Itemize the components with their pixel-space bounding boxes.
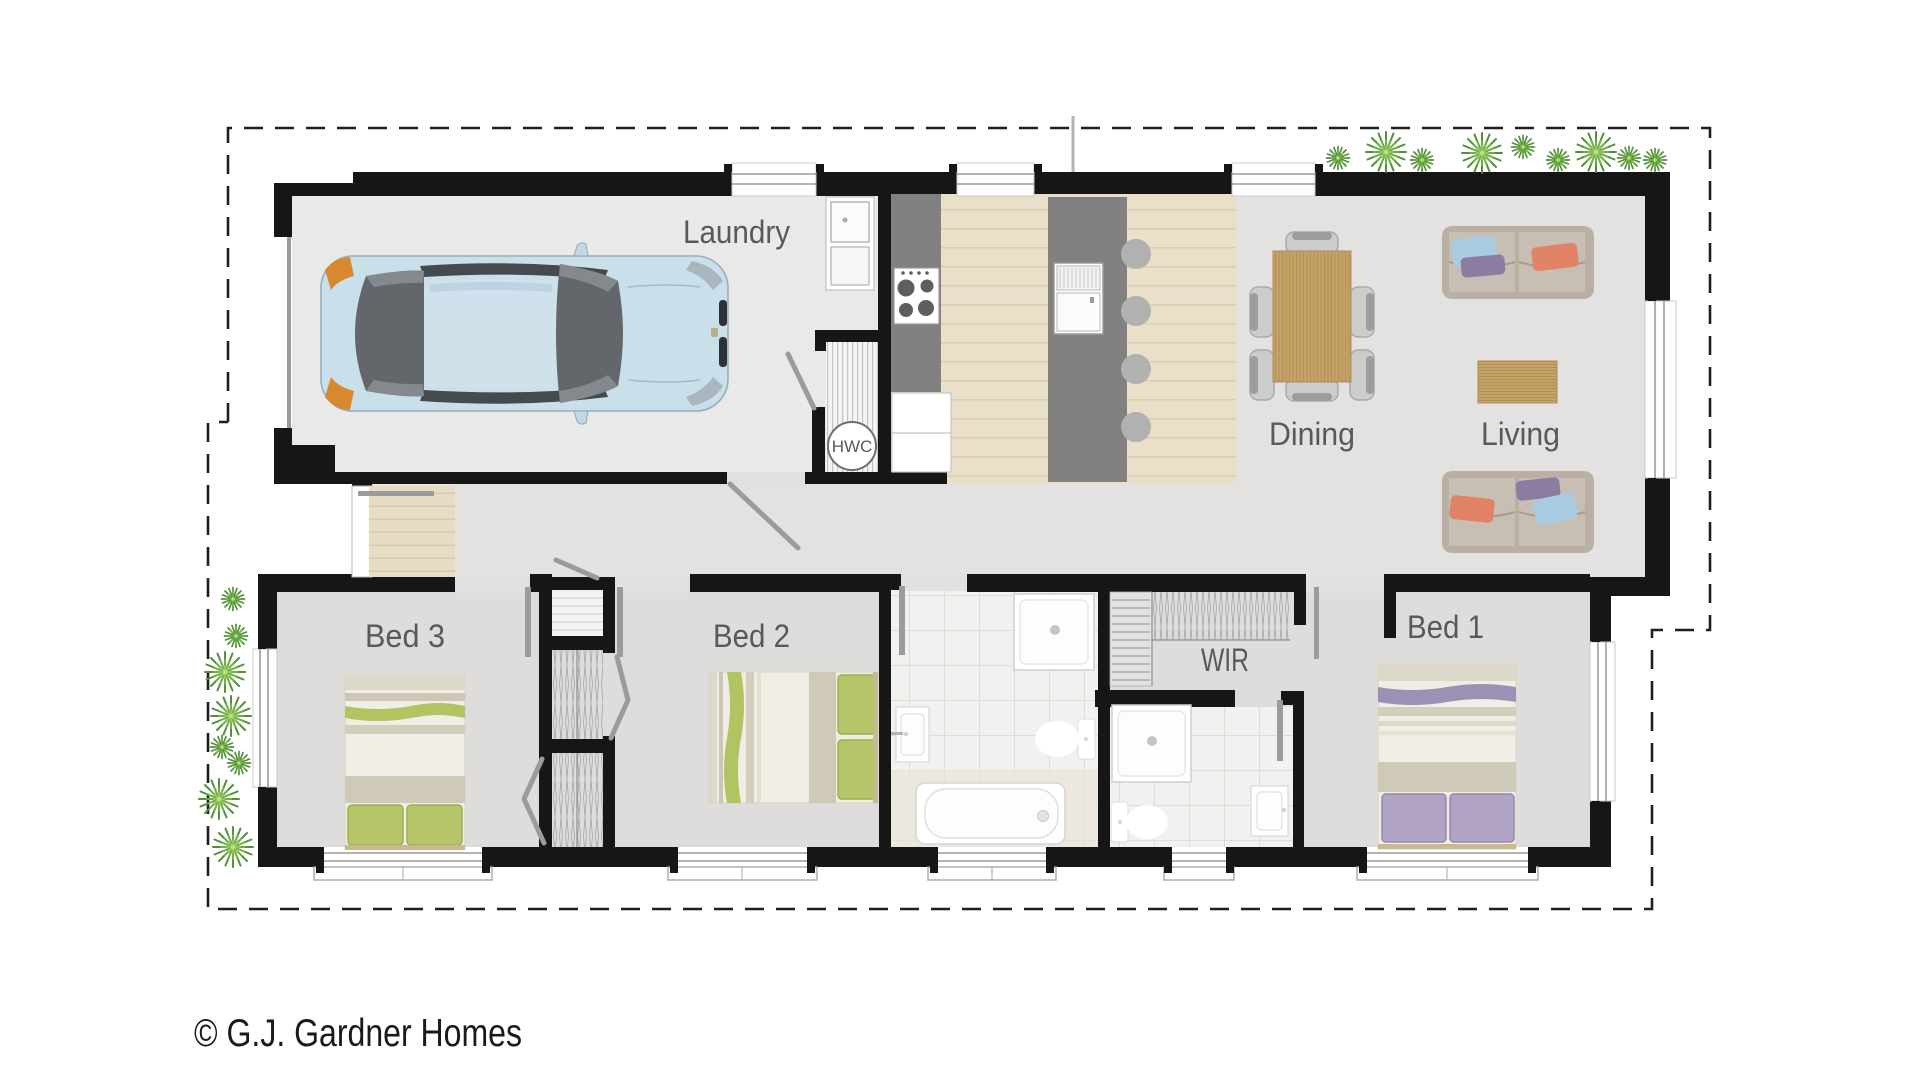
svg-text:Living: Living: [1481, 416, 1560, 452]
svg-text:HWC: HWC: [832, 437, 873, 456]
svg-text:© G.J. Gardner Homes: © G.J. Gardner Homes: [194, 1012, 522, 1055]
svg-text:Laundry: Laundry: [683, 214, 790, 250]
svg-text:WIR: WIR: [1201, 642, 1249, 678]
svg-text:Bed 2: Bed 2: [713, 618, 790, 654]
svg-text:Bed 3: Bed 3: [365, 618, 445, 654]
svg-text:Bed 1: Bed 1: [1407, 609, 1484, 645]
svg-text:Dining: Dining: [1269, 416, 1355, 452]
